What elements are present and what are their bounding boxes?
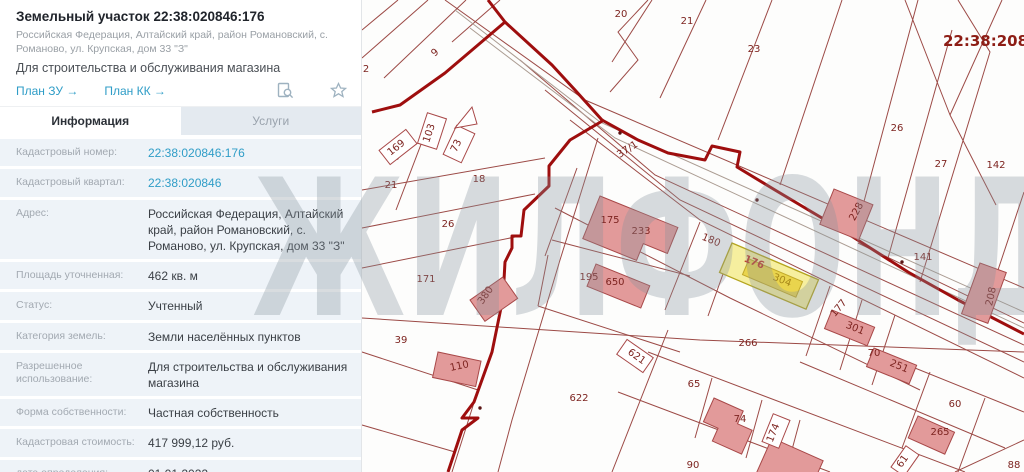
info-row-value: Частная собственность <box>140 405 351 421</box>
info-row-4: Статус:Учтенный <box>0 292 361 319</box>
parcel-address-subtitle: Российская Федерация, Алтайский край, ра… <box>16 29 329 56</box>
info-row-value: 01.01.2022 <box>140 466 351 472</box>
map-label-141: 141 <box>913 252 932 263</box>
info-row-value: Для строительства и обслуживания магазин… <box>140 359 351 391</box>
info-row-value-link[interactable]: 22:38:020846 <box>140 175 351 191</box>
map-label-142: 142 <box>986 160 1005 171</box>
map-label-195: 195 <box>579 272 598 283</box>
panel-header: Земельный участок 22:38:020846:176 Росси… <box>0 0 361 106</box>
info-row-7: Форма собственности:Частная собственност… <box>0 399 361 426</box>
map-label-2: 2 <box>363 64 369 75</box>
info-row-6: Разрешенное использование:Для строительс… <box>0 353 361 396</box>
info-row-value: Учтенный <box>140 298 351 314</box>
map-label-265: 265 <box>930 427 949 438</box>
info-row-value: 417 999,12 руб. <box>140 435 351 451</box>
cadastral-viewer: 2920212337/12118261713910316973380110262… <box>0 0 1024 472</box>
page-title: Земельный участок 22:38:020846:176 <box>16 9 347 24</box>
tab-information[interactable]: Информация <box>0 107 181 135</box>
info-row-0: Кадастровый номер:22:38:020846:176 <box>0 139 361 166</box>
map-label-65: 65 <box>688 379 701 390</box>
info-row-3: Площадь уточненная:462 кв. м <box>0 262 361 289</box>
info-panel: Земельный участок 22:38:020846:176 Росси… <box>0 0 362 472</box>
info-row-9: дата определения:01.01.2022 <box>0 460 361 472</box>
map-label-26: 26 <box>442 219 455 230</box>
info-row-label: Форма собственности: <box>16 405 140 419</box>
map-label-171: 171 <box>416 274 435 285</box>
map-label-21: 21 <box>681 16 694 27</box>
info-row-label: Адрес: <box>16 206 140 220</box>
info-row-5: Категория земель:Земли населённых пункто… <box>0 323 361 350</box>
quarter-number-label: 22:38:20835 <box>943 32 1024 50</box>
map-label-622: 622 <box>569 393 588 404</box>
plan-kk-link[interactable]: План КК → <box>104 84 166 98</box>
info-row-value: 462 кв. м <box>140 268 351 284</box>
star-icon[interactable] <box>330 82 347 99</box>
info-row-value-link[interactable]: 22:38:020846:176 <box>140 145 351 161</box>
info-row-8: Кадастровая стоимость:417 999,12 руб. <box>0 429 361 456</box>
info-row-value: Российская Федерация, Алтайский край, ра… <box>140 206 351 255</box>
preview-icon[interactable] <box>277 82 294 99</box>
plan-zu-link[interactable]: План ЗУ → <box>16 84 78 98</box>
map-label-20: 20 <box>615 9 628 20</box>
map-label-266: 266 <box>738 338 757 349</box>
info-row-label: дата определения: <box>16 466 140 472</box>
map-label-60: 60 <box>949 399 962 410</box>
info-row-label: Кадастровый квартал: <box>16 175 140 189</box>
map-label-21: 21 <box>385 180 398 191</box>
tab-bar: Информация Услуги <box>0 106 361 135</box>
info-row-label: Статус: <box>16 298 140 312</box>
map-label-88: 88 <box>1008 460 1021 471</box>
map-label-650: 650 <box>605 277 624 288</box>
map-label-23: 23 <box>748 44 761 55</box>
info-row-label: Площадь уточненная: <box>16 268 140 282</box>
info-row-label: Категория земель: <box>16 329 140 343</box>
plan-links-row: План ЗУ → План КК → <box>16 82 347 106</box>
map-label-39: 39 <box>395 335 408 346</box>
map-label-233: 233 <box>631 226 650 237</box>
info-row-label: Разрешенное использование: <box>16 359 140 386</box>
info-row-1: Кадастровый квартал:22:38:020846 <box>0 169 361 196</box>
map-label-90: 90 <box>687 460 700 471</box>
info-row-2: Адрес:Российская Федерация, Алтайский кр… <box>0 200 361 260</box>
map-label-74: 74 <box>734 414 747 425</box>
map-label-26: 26 <box>891 123 904 134</box>
map-label-175: 175 <box>600 215 619 226</box>
permitted-use-summary: Для строительства и обслуживания магазин… <box>16 61 347 75</box>
map-label-18: 18 <box>473 174 486 185</box>
info-rows: Кадастровый номер:22:38:020846:176Кадаст… <box>0 135 361 472</box>
map-label-70: 70 <box>868 348 881 359</box>
info-row-value: Земли населённых пунктов <box>140 329 351 345</box>
info-row-label: Кадастровый номер: <box>16 145 140 159</box>
tab-services[interactable]: Услуги <box>181 107 362 135</box>
info-row-label: Кадастровая стоимость: <box>16 435 140 449</box>
map-label-27: 27 <box>935 159 948 170</box>
